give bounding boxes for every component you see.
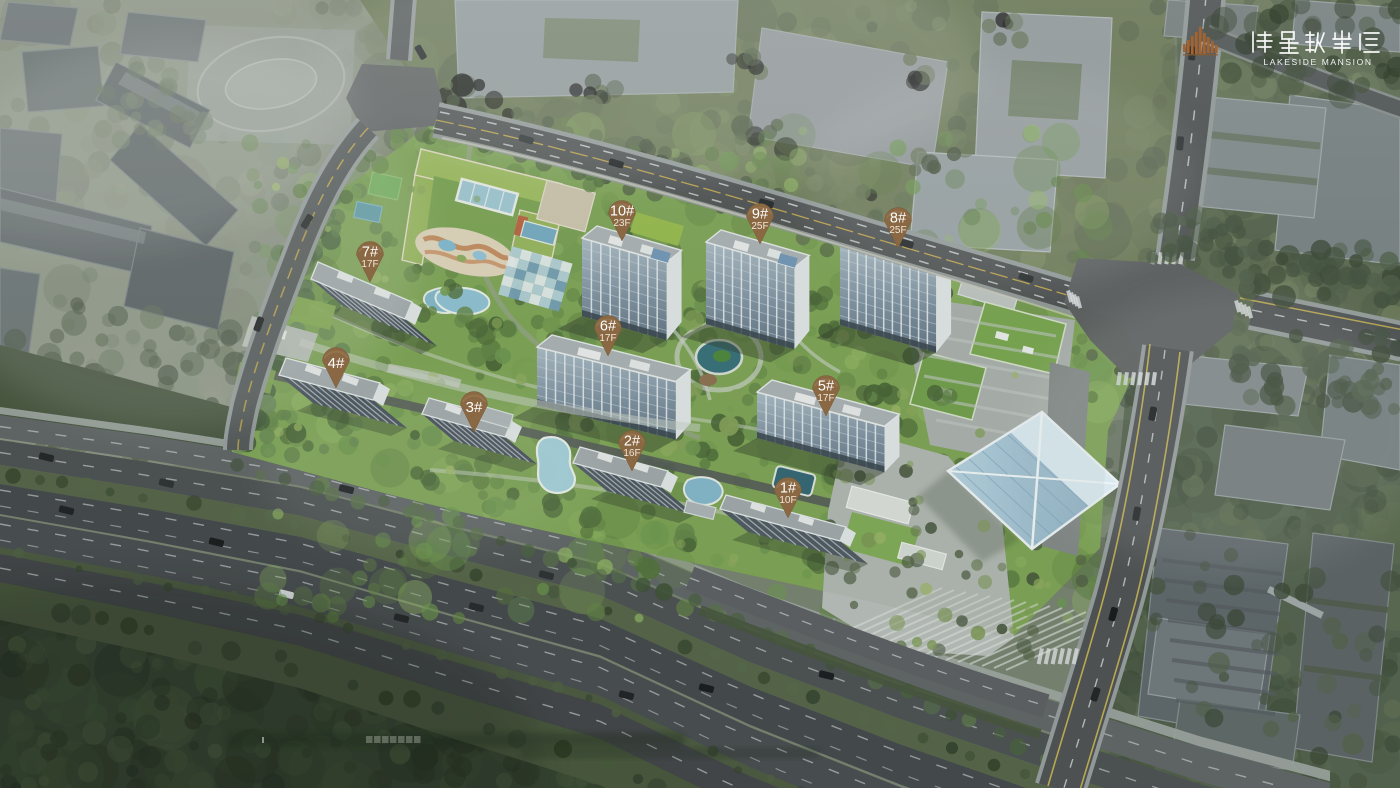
- svg-text:17F: 17F: [817, 393, 834, 404]
- svg-text:LAKESIDE MANSION: LAKESIDE MANSION: [1263, 57, 1372, 67]
- svg-text:3#: 3#: [466, 399, 483, 416]
- svg-text:10F: 10F: [779, 495, 796, 506]
- svg-text:17F: 17F: [361, 259, 378, 270]
- svg-text:16F: 16F: [623, 448, 640, 459]
- svg-text:25F: 25F: [751, 221, 768, 232]
- svg-text:25F: 25F: [889, 225, 906, 236]
- svg-text:23F: 23F: [613, 218, 630, 229]
- svg-text:17F: 17F: [599, 333, 616, 344]
- svg-text:4#: 4#: [328, 355, 345, 372]
